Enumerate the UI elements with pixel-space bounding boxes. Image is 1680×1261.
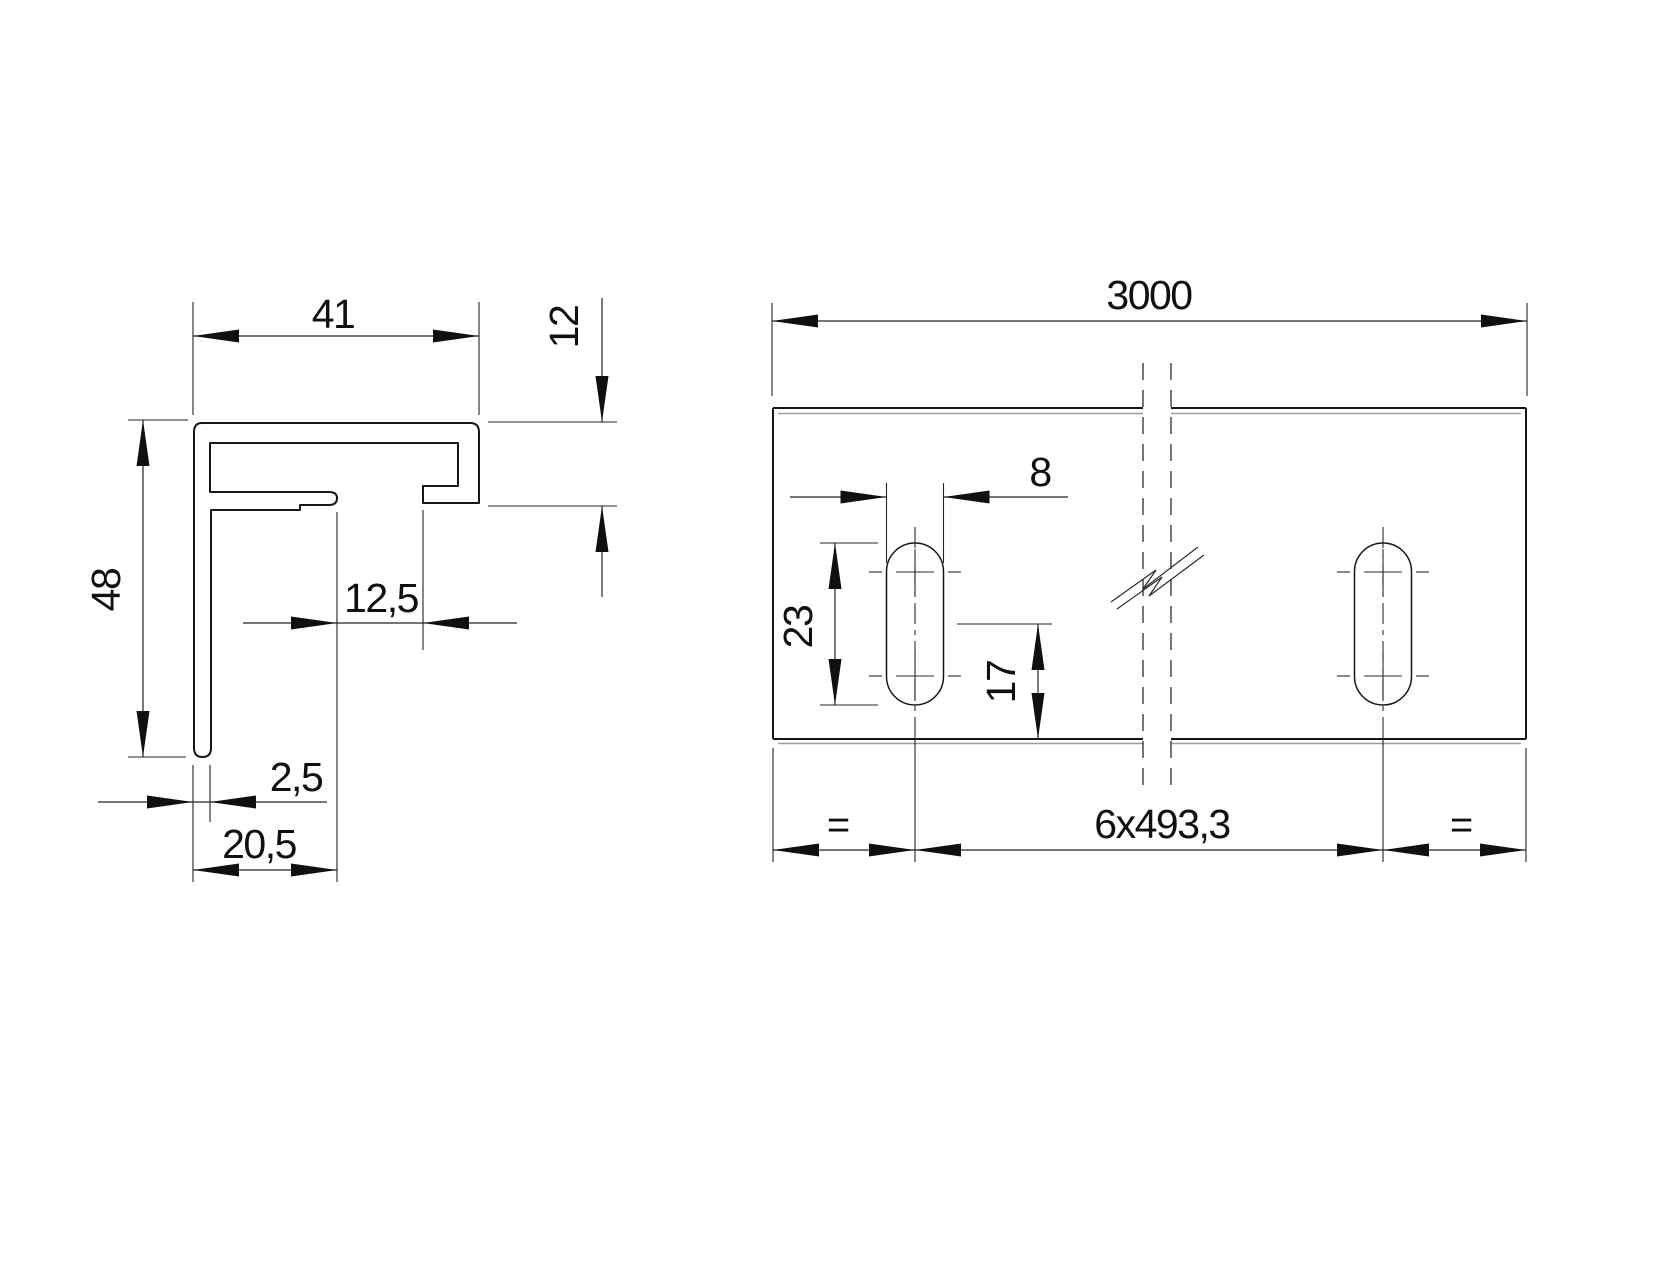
arrowhead [841, 491, 887, 504]
arrowhead [433, 330, 479, 343]
arrowhead [829, 659, 842, 705]
break-zigzag-symbol [1117, 555, 1204, 609]
arrowhead [596, 376, 609, 422]
arrowhead [1480, 844, 1526, 857]
arrowhead [1481, 315, 1527, 328]
dim-label-20-5: 20,5 [222, 821, 296, 867]
arrowhead [137, 711, 150, 757]
dim-label-23: 23 [775, 606, 821, 649]
dim-label-8: 8 [1029, 449, 1051, 495]
dim-label-equal-right: = [1450, 803, 1472, 847]
dim-top-width-41: 41 [193, 291, 479, 415]
dim-label-equal-left: = [827, 803, 849, 847]
dim-total-height-48: 48 [83, 420, 188, 757]
drawing-svg: 41 12 48 12,5 [0, 0, 1680, 1261]
dim-slot-length-23: 23 [775, 543, 878, 705]
arrowhead [869, 844, 915, 857]
break-zigzag-symbol [1111, 547, 1198, 602]
dim-label-6x493-3: 6x493,3 [1094, 801, 1229, 847]
slot-right [1337, 527, 1429, 739]
arrowhead [193, 330, 239, 343]
break-lines [1111, 363, 1204, 790]
dim-hole-spacing-chain: = 6x493,3 = [773, 739, 1526, 862]
arrowhead [147, 796, 193, 809]
dim-label-17: 17 [978, 661, 1024, 704]
arrowhead [1032, 624, 1045, 670]
technical-drawing-sheet: 41 12 48 12,5 [0, 0, 1680, 1261]
arrowhead [1337, 844, 1383, 857]
dim-label-2-5: 2,5 [270, 754, 323, 800]
arrowhead [1383, 844, 1429, 857]
arrowhead [291, 617, 337, 630]
arrowhead [944, 491, 990, 504]
arrowhead [137, 420, 150, 466]
dim-cap-height-12: 12 [488, 298, 617, 597]
arrowhead [210, 796, 256, 809]
dim-label-12-5: 12,5 [344, 575, 418, 621]
arrowhead [596, 506, 609, 552]
dim-label-3000: 3000 [1106, 272, 1192, 318]
arrowhead [423, 617, 469, 630]
arrowhead [773, 844, 819, 857]
dim-label-48: 48 [83, 568, 129, 611]
arrowhead [291, 864, 337, 877]
arrowhead [829, 543, 842, 589]
dim-label-12: 12 [541, 306, 587, 349]
arrowhead [772, 315, 818, 328]
arrowhead [1032, 693, 1045, 739]
dim-base-width-20-5: 20,5 [193, 821, 337, 877]
arrowhead [915, 844, 961, 857]
dim-label-41: 41 [312, 291, 355, 337]
profile-cross-section-view: 41 12 48 12,5 [83, 291, 617, 882]
rail-top-view: 3000 8 23 17 [772, 272, 1527, 862]
slot-left [869, 527, 961, 739]
dim-length-3000: 3000 [772, 272, 1527, 396]
dim-slot-center-17: 17 [957, 624, 1052, 739]
